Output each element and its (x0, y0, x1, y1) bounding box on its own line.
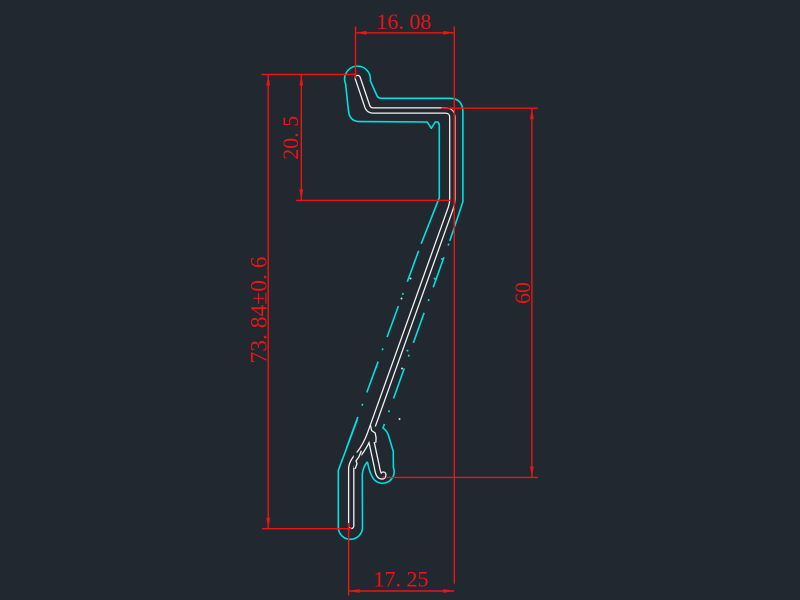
svg-text:16. 08: 16. 08 (377, 9, 432, 34)
svg-text:20. 5: 20. 5 (278, 116, 303, 160)
svg-text:17. 25: 17. 25 (374, 567, 429, 592)
svg-text:60: 60 (510, 282, 535, 304)
svg-text:73. 84±0. 6: 73. 84±0. 6 (247, 256, 273, 363)
